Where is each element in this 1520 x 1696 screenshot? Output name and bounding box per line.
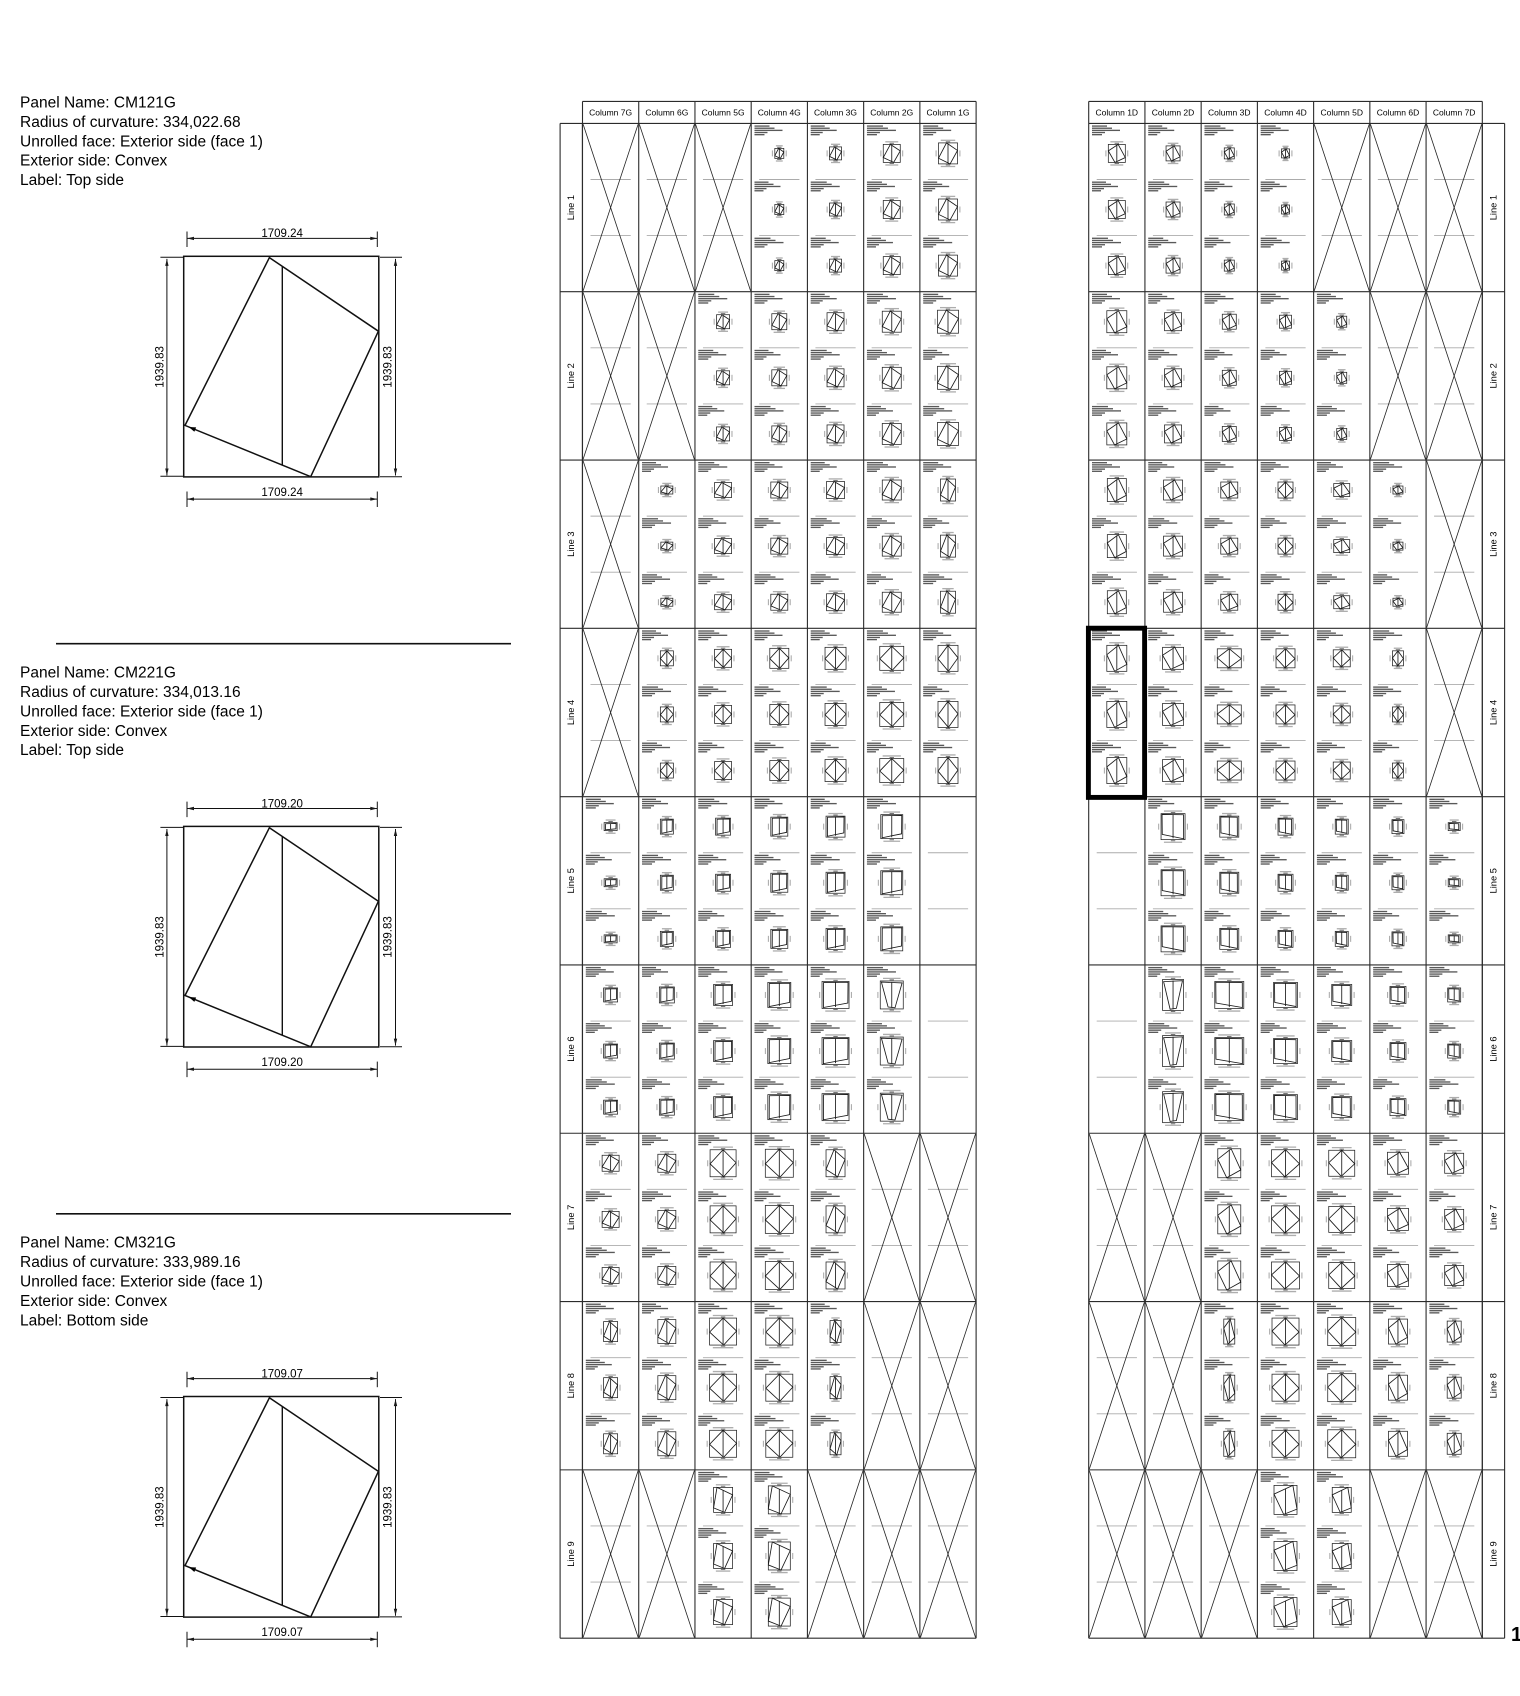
svg-text:Column 7G: Column 7G	[589, 108, 632, 118]
svg-text:Radius of curvature: 334,022.6: Radius of curvature: 334,022.68	[20, 114, 241, 131]
svg-text:Radius of curvature: 334,013.1: Radius of curvature: 334,013.16	[20, 684, 241, 701]
svg-text:Line 7: Line 7	[566, 1205, 576, 1230]
svg-text:Line 3: Line 3	[1488, 531, 1498, 556]
svg-text:Unrolled face: Exterior side (: Unrolled face: Exterior side (face 1)	[20, 133, 263, 150]
svg-text:Unrolled face: Exterior side (: Unrolled face: Exterior side (face 1)	[20, 703, 263, 720]
svg-text:Panel Name: CM221G: Panel Name: CM221G	[20, 665, 176, 682]
svg-text:Line 2: Line 2	[1488, 363, 1498, 388]
svg-text:1709.24: 1709.24	[261, 228, 303, 240]
svg-text:Column 2D: Column 2D	[1152, 108, 1195, 118]
svg-text:Line 5: Line 5	[566, 868, 576, 893]
svg-text:Line 3: Line 3	[566, 531, 576, 556]
svg-text:Column 1G: Column 1G	[927, 108, 970, 118]
svg-text:1709.20: 1709.20	[261, 798, 303, 810]
svg-text:1709.07: 1709.07	[261, 1627, 303, 1639]
svg-text:Line 1: Line 1	[1488, 195, 1498, 220]
svg-text:1709.07: 1709.07	[261, 1368, 303, 1380]
svg-text:Line 4: Line 4	[566, 700, 576, 725]
svg-text:Line 8: Line 8	[1488, 1373, 1498, 1398]
svg-text:1939.83: 1939.83	[155, 346, 167, 388]
svg-text:Column 3G: Column 3G	[814, 108, 857, 118]
svg-text:Exterior side: Convex: Exterior side: Convex	[20, 723, 168, 740]
svg-text:Panel Name: CM121G: Panel Name: CM121G	[20, 95, 176, 112]
svg-text:Line 2: Line 2	[566, 363, 576, 388]
svg-text:Label: Top side: Label: Top side	[20, 172, 124, 189]
svg-text:Unrolled face: Exterior side (: Unrolled face: Exterior side (face 1)	[20, 1274, 263, 1291]
svg-text:Line 9: Line 9	[1488, 1541, 1498, 1566]
svg-text:Column 5G: Column 5G	[702, 108, 745, 118]
svg-text:Line 6: Line 6	[1488, 1036, 1498, 1061]
svg-text:Column 4D: Column 4D	[1264, 108, 1307, 118]
svg-text:Line 7: Line 7	[1488, 1205, 1498, 1230]
svg-text:Column 2G: Column 2G	[870, 108, 913, 118]
svg-text:Line 9: Line 9	[566, 1541, 576, 1566]
svg-text:1939.83: 1939.83	[383, 346, 395, 388]
svg-text:Exterior side: Convex: Exterior side: Convex	[20, 153, 168, 170]
svg-text:Column 6D: Column 6D	[1377, 108, 1420, 118]
svg-text:Label: Top side: Label: Top side	[20, 742, 124, 759]
svg-text:Line 8: Line 8	[566, 1373, 576, 1398]
svg-text:Line 6: Line 6	[566, 1036, 576, 1061]
svg-text:1939.83: 1939.83	[383, 1486, 395, 1528]
svg-text:Column 5D: Column 5D	[1320, 108, 1363, 118]
svg-text:Line 4: Line 4	[1488, 700, 1498, 725]
svg-text:1: 1	[1511, 1624, 1520, 1646]
svg-text:Label: Bottom side: Label: Bottom side	[20, 1312, 148, 1329]
svg-text:Line 5: Line 5	[1488, 868, 1498, 893]
svg-text:Column 4G: Column 4G	[758, 108, 801, 118]
svg-text:Column 3D: Column 3D	[1208, 108, 1251, 118]
svg-text:1709.20: 1709.20	[261, 1057, 303, 1069]
svg-text:Exterior side: Convex: Exterior side: Convex	[20, 1293, 168, 1310]
svg-text:Line 1: Line 1	[566, 195, 576, 220]
svg-text:Radius of curvature: 333,989.1: Radius of curvature: 333,989.16	[20, 1254, 241, 1271]
svg-text:1709.24: 1709.24	[261, 487, 303, 499]
svg-text:Panel Name: CM321G: Panel Name: CM321G	[20, 1235, 176, 1252]
svg-text:1939.83: 1939.83	[383, 916, 395, 958]
svg-text:1939.83: 1939.83	[155, 916, 167, 958]
svg-text:Column 1D: Column 1D	[1096, 108, 1139, 118]
svg-text:Column 7D: Column 7D	[1433, 108, 1476, 118]
svg-text:Column 6G: Column 6G	[645, 108, 688, 118]
svg-text:1939.83: 1939.83	[155, 1486, 167, 1528]
